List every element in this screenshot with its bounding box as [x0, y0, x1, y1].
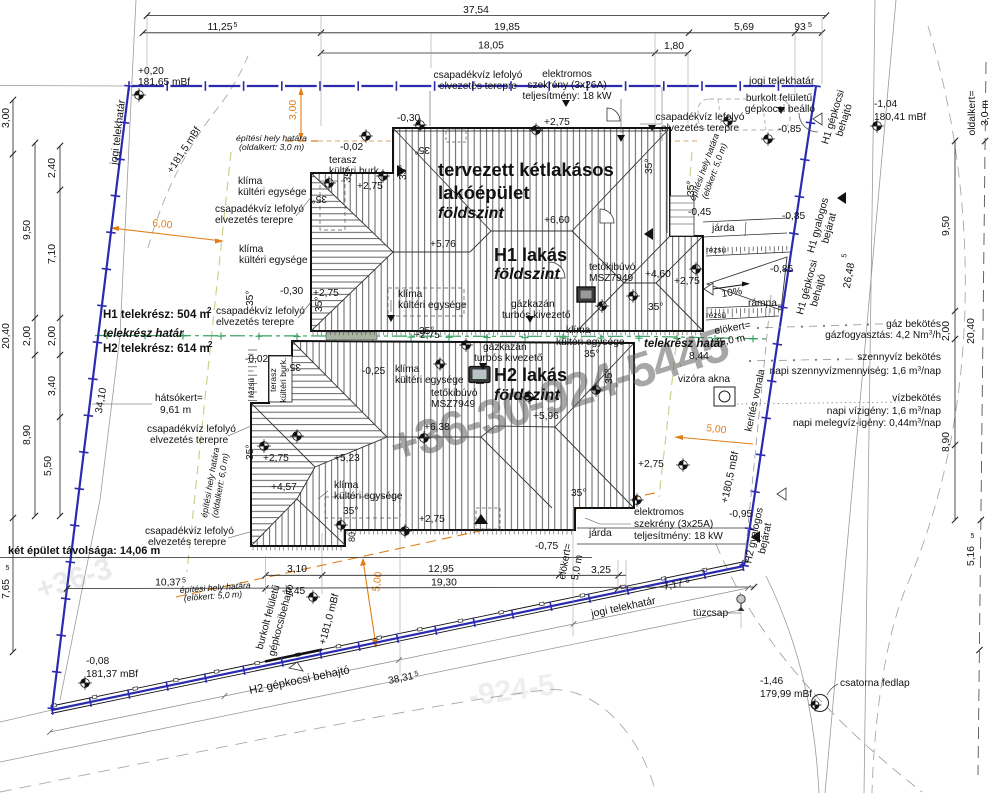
svg-text:+6,60: +6,60	[544, 215, 570, 226]
svg-text:elvezetés terepre: elvezetés terepre	[148, 537, 226, 548]
svg-text:rámpa: rámpa	[748, 298, 777, 309]
svg-text:vizóra akna: vizóra akna	[678, 374, 730, 385]
svg-text:-0,85: -0,85	[770, 264, 794, 275]
svg-text:H2 lakás: H2 lakás	[494, 365, 567, 385]
svg-text:járda: járda	[588, 528, 612, 539]
svg-text:+6,38: +6,38	[424, 422, 450, 433]
svg-text:5: 5	[808, 22, 812, 29]
svg-text:-0,75: -0,75	[535, 541, 559, 552]
svg-text:terasz: terasz	[329, 155, 357, 166]
svg-text:klíma: klíma	[566, 325, 591, 336]
svg-text:telekrész határ: telekrész határ	[103, 328, 184, 340]
svg-text:20,40: 20,40	[1, 323, 12, 349]
svg-text:-0,02: -0,02	[340, 142, 364, 153]
svg-text:H1 telekrész: 504 m: H1 telekrész: 504 m	[103, 309, 210, 321]
svg-text:5: 5	[6, 565, 10, 572]
svg-text:kültéri egysége: kültéri egysége	[395, 375, 464, 386]
svg-text:181,65 mBf: 181,65 mBf	[138, 77, 190, 88]
svg-text:gáz bekötés: gáz bekötés	[886, 319, 941, 330]
svg-text:35°: 35°	[644, 159, 655, 174]
svg-text:klíma: klíma	[334, 480, 359, 491]
svg-text:klíma: klíma	[239, 244, 264, 255]
svg-text:elektromos: elektromos	[634, 507, 684, 518]
svg-text:3,40: 3,40	[47, 376, 58, 396]
svg-text:kültéri burk.: kültéri burk.	[329, 166, 382, 177]
svg-text:turbós kivezető: turbós kivezető	[502, 310, 571, 321]
svg-text:9,61 m: 9,61 m	[160, 405, 191, 416]
svg-text:tetőkibúvó: tetőkibúvó	[431, 388, 478, 399]
svg-text:3,00: 3,00	[288, 100, 299, 120]
svg-text:napi vízigény: 1,6 m3/nap: napi vízigény: 1,6 m3/nap	[827, 406, 942, 418]
svg-text:terasz: terasz	[268, 368, 278, 392]
svg-text:telekrész határ: telekrész határ	[644, 338, 725, 350]
svg-text:-1,46: -1,46	[760, 676, 784, 687]
svg-text:tervezett kétlakásos: tervezett kétlakásos	[438, 159, 614, 180]
svg-text:csapadékvíz lefolyó: csapadékvíz lefolyó	[145, 526, 234, 537]
svg-text:MSZ7949: MSZ7949	[589, 273, 634, 284]
svg-text:181,37 mBf: 181,37 mBf	[86, 669, 138, 680]
svg-text:5,50: 5,50	[43, 456, 54, 476]
svg-text:-0,08: -0,08	[86, 656, 110, 667]
svg-text:klíma: klíma	[238, 176, 263, 187]
svg-text:turbós kivezető: turbós kivezető	[474, 353, 543, 364]
svg-text:elvezetés terepre: elvezetés terepre	[216, 317, 294, 328]
svg-text:8,44: 8,44	[689, 351, 709, 362]
svg-text:-0,95: -0,95	[729, 509, 753, 520]
svg-text:+2,75: +2,75	[357, 181, 383, 192]
svg-text:-0,25: -0,25	[362, 366, 386, 377]
svg-text:12,95: 12,95	[428, 564, 454, 575]
svg-text:2: 2	[207, 306, 212, 315]
svg-text:két épület távolsága: 14,06 m: két épület távolsága: 14,06 m	[8, 545, 160, 557]
svg-text:-0,85: -0,85	[782, 211, 806, 222]
svg-text:-1,04: -1,04	[874, 99, 898, 110]
svg-text:kültéri egysége: kültéri egysége	[239, 255, 308, 266]
svg-text:35°: 35°	[245, 445, 256, 460]
svg-text:7,65: 7,65	[1, 579, 12, 599]
svg-text:rézsü: rézsü	[706, 246, 726, 255]
svg-text:7,10: 7,10	[47, 244, 58, 264]
svg-text:37,54: 37,54	[463, 5, 489, 16]
svg-text:5,16: 5,16	[966, 546, 977, 566]
svg-text:csapadékvíz lefolyó: csapadékvíz lefolyó	[215, 204, 304, 215]
svg-text:10,37: 10,37	[155, 578, 181, 589]
svg-text:+2,75: +2,75	[544, 117, 570, 128]
svg-text:jogi telekhatár: jogi telekhatár	[748, 75, 815, 87]
svg-text:gázkazán: gázkazán	[483, 342, 527, 353]
svg-text:35°: 35°	[419, 326, 434, 337]
svg-text:kültéri egysége: kültéri egysége	[334, 491, 403, 502]
svg-text:csatorna fedlap: csatorna fedlap	[840, 678, 910, 689]
svg-text:klíma: klíma	[398, 289, 423, 300]
svg-text:180,41 mBf: 180,41 mBf	[874, 112, 926, 123]
svg-text:35°: 35°	[343, 506, 358, 517]
svg-text:szennyvíz bekötés: szennyvíz bekötés	[857, 352, 941, 363]
svg-text:20,40: 20,40	[966, 318, 977, 344]
svg-text:csapadékvíz lefolyó: csapadékvíz lefolyó	[147, 424, 236, 435]
svg-text:18,05: 18,05	[478, 41, 504, 52]
svg-text:oldalkert=: oldalkert=	[967, 91, 978, 136]
svg-text:+4,60: +4,60	[645, 269, 671, 280]
svg-text:+5,96: +5,96	[533, 411, 559, 422]
svg-text:klíma: klíma	[395, 364, 420, 375]
svg-text:35°: 35°	[648, 302, 663, 313]
svg-text:11,25: 11,25	[207, 22, 232, 33]
svg-text:+2,75: +2,75	[263, 453, 289, 464]
svg-text:35°: 35°	[686, 181, 697, 196]
svg-text:3,00: 3,00	[1, 108, 12, 128]
svg-text:93: 93	[794, 22, 806, 33]
svg-text:8,90: 8,90	[22, 425, 33, 445]
svg-text:földszint: földszint	[494, 266, 560, 283]
svg-text:szekrény (3x26A): szekrény (3x26A)	[527, 80, 606, 91]
svg-text:35°: 35°	[571, 488, 586, 499]
svg-text:H2 telekrész: 614 m: H2 telekrész: 614 m	[103, 343, 210, 355]
svg-text:elektromos: elektromos	[542, 69, 592, 80]
svg-text:35°: 35°	[604, 369, 615, 384]
svg-text:5,69: 5,69	[734, 22, 754, 33]
svg-text:5: 5	[234, 22, 238, 29]
svg-text:gázkazán: gázkazán	[511, 299, 555, 310]
svg-text:9,50: 9,50	[22, 220, 33, 240]
svg-text:19,30: 19,30	[431, 578, 457, 589]
svg-text:tüzcsap: tüzcsap	[693, 608, 728, 619]
svg-text:+2,75: +2,75	[674, 276, 700, 287]
svg-text:+5,23: +5,23	[334, 453, 360, 464]
svg-text:5: 5	[182, 578, 186, 585]
svg-text:+0,20: +0,20	[138, 66, 164, 77]
svg-text:rézsü: rézsü	[706, 311, 726, 320]
svg-text:-0,02: -0,02	[245, 354, 269, 365]
svg-text:2,00: 2,00	[22, 326, 33, 346]
svg-text:gázfogyasztás: 4,2 Nm3/h: gázfogyasztás: 4,2 Nm3/h	[825, 330, 941, 342]
svg-text:-0,30: -0,30	[280, 286, 304, 297]
svg-text:5: 5	[971, 533, 975, 540]
svg-text:35°: 35°	[584, 349, 599, 360]
svg-text:2: 2	[208, 340, 213, 349]
svg-text:tetőkibúvó: tetőkibúvó	[589, 262, 636, 273]
svg-text:35°: 35°	[312, 193, 327, 204]
svg-text:teljesítmény: 18 kW: teljesítmény: 18 kW	[634, 531, 723, 542]
svg-text:kültéri egysége: kültéri egysége	[556, 337, 625, 348]
svg-text:2,00: 2,00	[941, 321, 952, 341]
svg-text:3,10: 3,10	[287, 564, 307, 575]
svg-text:3,0 m: 3,0 m	[980, 100, 991, 126]
svg-text:kültéri burk.: kültéri burk.	[278, 358, 288, 403]
svg-text:elvezetés terepre: elvezetés terepre	[439, 81, 517, 92]
svg-text:+2,75: +2,75	[638, 459, 664, 470]
svg-text:napi szennyvízmennyiség: 1,6 m: napi szennyvízmennyiség: 1,6 m3/nap	[770, 366, 942, 378]
svg-text:földszint: földszint	[438, 205, 504, 222]
svg-text:3,25: 3,25	[591, 565, 611, 576]
svg-text:2,00: 2,00	[47, 326, 58, 346]
svg-text:csapadékvíz lefolyó: csapadékvíz lefolyó	[434, 70, 523, 81]
svg-text:35°: 35°	[314, 297, 325, 312]
svg-text:MSZ7949: MSZ7949	[431, 399, 476, 410]
svg-text:9,50: 9,50	[941, 216, 952, 236]
svg-text:lakóépület: lakóépület	[438, 182, 530, 203]
svg-text:kültéri egysége: kültéri egysége	[238, 187, 307, 198]
svg-text:szekrény (3x25A): szekrény (3x25A)	[634, 519, 713, 530]
svg-text:rézsü: rézsü	[247, 378, 256, 398]
svg-text:burkolt felületű: burkolt felületű	[746, 93, 813, 104]
svg-text:80: 80	[347, 532, 357, 542]
svg-text:H1 lakás: H1 lakás	[494, 245, 567, 265]
svg-text:19,85: 19,85	[494, 22, 520, 33]
svg-text:kültéri egysége: kültéri egysége	[398, 300, 467, 311]
svg-text:elvezetés terepre: elvezetés terepre	[150, 435, 228, 446]
svg-text:+5,76: +5,76	[430, 239, 456, 250]
svg-text:járda: járda	[711, 223, 735, 234]
svg-text:2,40: 2,40	[47, 158, 58, 178]
svg-text:35°: 35°	[415, 144, 430, 155]
svg-text:8,90: 8,90	[941, 432, 952, 452]
svg-text:1,80: 1,80	[664, 41, 684, 52]
svg-text:hátsókert=: hátsókert=	[155, 393, 203, 404]
svg-text:-0,45: -0,45	[688, 207, 712, 218]
svg-text:+2,75: +2,75	[419, 514, 445, 525]
svg-text:(oldalkert: 3,0 m): (oldalkert: 3,0 m)	[239, 142, 304, 152]
svg-text:179,99 mBf: 179,99 mBf	[760, 689, 812, 700]
svg-text:csapadékvíz lefolyó: csapadékvíz lefolyó	[216, 306, 305, 317]
svg-text:elvezetés terepre: elvezetés terepre	[215, 215, 293, 226]
svg-text:+4,57: +4,57	[271, 482, 297, 493]
svg-text:35°: 35°	[245, 291, 256, 306]
